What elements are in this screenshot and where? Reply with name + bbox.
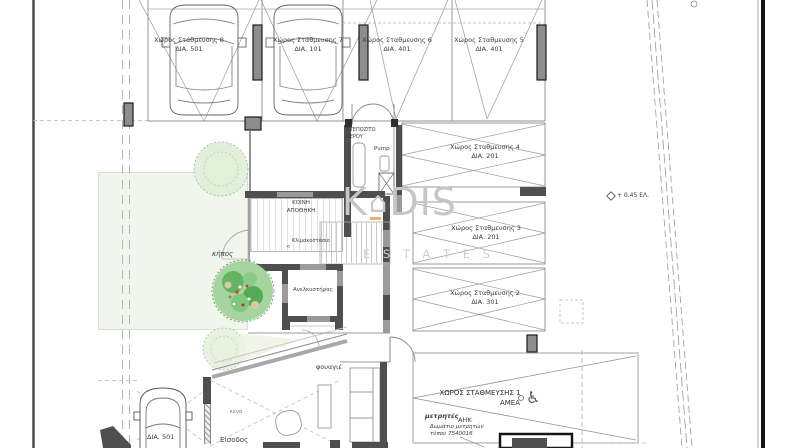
- parking-space-6-label: Χώρος Σταθμευσης 6 ΔΙΑ. 401: [362, 36, 432, 54]
- foyer-label: φουαγιέ: [316, 363, 342, 372]
- parking-space-1-label: ΧΩΡΟΣ ΣΤΑΘΜΕΥΣΗΣ 1: [439, 389, 520, 399]
- parking-2-dia: ΔΙΑ. 301: [450, 298, 520, 307]
- watermark-kdis: K⌂DIS: [342, 183, 457, 221]
- storage-line2: ΑΠΟΘΗΚΗ: [287, 208, 315, 216]
- parking-4-dia: ΔΙΑ. 201: [450, 152, 520, 161]
- staircase-direction-arrow: <: [286, 244, 290, 251]
- meter-room-line2: τύπου 7540016: [430, 431, 473, 439]
- watermark-estates: E S T A T E S: [363, 247, 494, 261]
- car-top-view-7: [266, 5, 350, 115]
- site-boundary-lines: [33, 0, 765, 448]
- parking-space-4-label: Χώρος Σταθμευσης 4 ΔΙΑ. 201: [450, 143, 520, 161]
- parking-space-2-label: Χώρος Σταθμευσης 2 ΔΙΑ. 301: [450, 289, 520, 307]
- watermark-k: K: [342, 180, 368, 224]
- parking-4-name: Χώρος Σταθμευσης 4: [450, 143, 520, 152]
- elevator-label: Ανελκυστήρας: [293, 287, 333, 295]
- parking-6-dia: ΔΙΑ. 401: [362, 45, 432, 54]
- parking-6-name: Χώρος Σταθμευσης 6: [362, 36, 432, 45]
- elevation-marker-symbol: [607, 192, 615, 200]
- parking-3-name: Χώρος Σταθμευσης 3: [451, 224, 521, 233]
- parking-5-name: Χώρος Σταθμευσης 5: [454, 36, 524, 45]
- watermark-house-icon: ⌂: [369, 185, 388, 219]
- void-label: κενό: [230, 409, 243, 417]
- parking-7-dia: ΔΙΑ. 101: [273, 45, 343, 54]
- parking-5-dia: ΔΙΑ. 401: [454, 45, 524, 54]
- garden-trees: [194, 142, 300, 370]
- wheelchair-icon: ♿: [526, 388, 540, 407]
- pump-label: Pump: [374, 146, 390, 154]
- parking-8-name: Χώρος Στάθμευσης 8: [154, 36, 224, 45]
- elevation-label: + 0.45 ΕΛ.: [617, 192, 649, 200]
- watermark-dis: DIS: [389, 180, 457, 224]
- parking-3-dia: ΔΙΑ. 201: [451, 233, 521, 242]
- parking-7-name: Χώρος Στάθμευσης 7: [273, 36, 343, 45]
- car-plate-label: ΔΙΑ. 501: [147, 433, 174, 442]
- meters-label: μετρητές: [425, 412, 458, 421]
- water-tank-label: ΝΤΕΠΟΖΙΤΟ ΝΕΡΟΥ: [346, 127, 376, 141]
- foyer-lines: [248, 333, 415, 448]
- floor-plan-canvas: K⌂DIS E S T A T E S Χώρος Στάθμευσης 8 Δ…: [0, 0, 796, 448]
- parking-space-1-amea: ΑΜΕΑ: [500, 399, 520, 409]
- water-tank-line2: ΝΕΡΟΥ: [346, 134, 376, 141]
- watermark-accent-dash: [370, 217, 381, 220]
- storage-label: ΚΟΙΝΗ ΑΠΟΘΗΚΗ: [287, 200, 315, 215]
- water-tank-line1: ΝΤΕΠΟΖΙΤΟ: [346, 127, 376, 134]
- parking-2-name: Χώρος Σταθμευσης 2: [450, 289, 520, 298]
- parking-space-5-label: Χώρος Σταθμευσης 5 ΔΙΑ. 401: [454, 36, 524, 54]
- storage-line1: ΚΟΙΝΗ: [287, 200, 315, 208]
- car-top-view-8: [162, 5, 246, 115]
- plan-linework: [0, 0, 796, 448]
- garden-label: κήπος: [212, 250, 233, 260]
- parking-space-8-label: Χώρος Στάθμευσης 8 ΔΙΑ. 501: [154, 36, 224, 54]
- parking-8-dia: ΔΙΑ. 501: [154, 45, 224, 54]
- parking-space-3-label: Χώρος Σταθμευσης 3 ΔΙΑ. 201: [451, 224, 521, 242]
- parking-space-7-label: Χώρος Στάθμευσης 7 ΔΙΑ. 101: [273, 36, 343, 54]
- staircase-label: Κλιμακοστάσιο: [292, 238, 330, 245]
- entrance-label: Είσοδος: [220, 436, 248, 446]
